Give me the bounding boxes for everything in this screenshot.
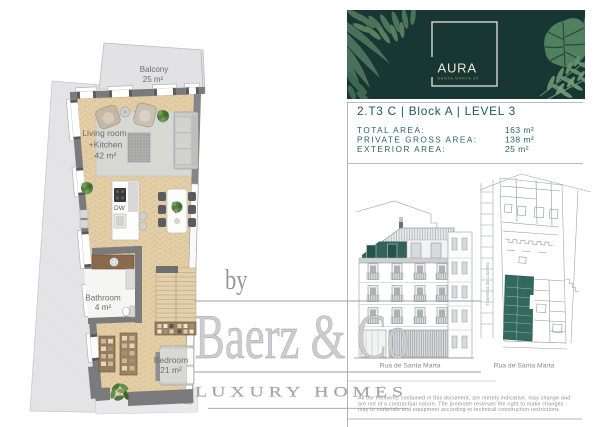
svg-text:DW: DW [114,205,126,212]
svg-text:Living room: Living room [82,128,126,138]
svg-text:+Kitchen: +Kitchen [89,140,123,150]
svg-text:Travessa do Loureiro: Travessa do Loureiro [485,262,490,306]
svg-text:2.T3 C | Block A | LEVEL 3: 2.T3 C | Block A | LEVEL 3 [357,104,516,118]
svg-text:42 m²: 42 m² [95,151,117,161]
svg-text:Baerz & Co: Baerz & Co [195,302,409,373]
svg-text:25 m²: 25 m² [505,144,529,154]
svg-text:PRIVATE GROSS AREA:: PRIVATE GROSS AREA: [357,136,478,145]
svg-text:TOTAL AREA:: TOTAL AREA: [357,126,425,135]
svg-text:SANTA MARTA 30: SANTA MARTA 30 [438,77,479,81]
svg-text:L U X U R Y H O M E S: L U X U R Y H O M E S [195,384,403,401]
svg-text:138 m²: 138 m² [505,135,534,145]
svg-text:by: by [225,265,248,296]
svg-text:Rua de Santa Marta: Rua de Santa Marta [494,363,555,370]
svg-text:EXTERIOR AREA:: EXTERIOR AREA: [357,145,446,154]
svg-text:25 m²: 25 m² [143,75,164,84]
svg-text:Bathroom: Bathroom [85,294,121,303]
svg-text:4 m²: 4 m² [95,303,112,312]
svg-text:21 m²: 21 m² [160,365,182,375]
svg-text:163 m²: 163 m² [505,125,534,135]
svg-text:Balcony: Balcony [140,65,168,74]
svg-text:Bedroom: Bedroom [154,355,189,365]
svg-text:AURA: AURA [438,61,477,76]
